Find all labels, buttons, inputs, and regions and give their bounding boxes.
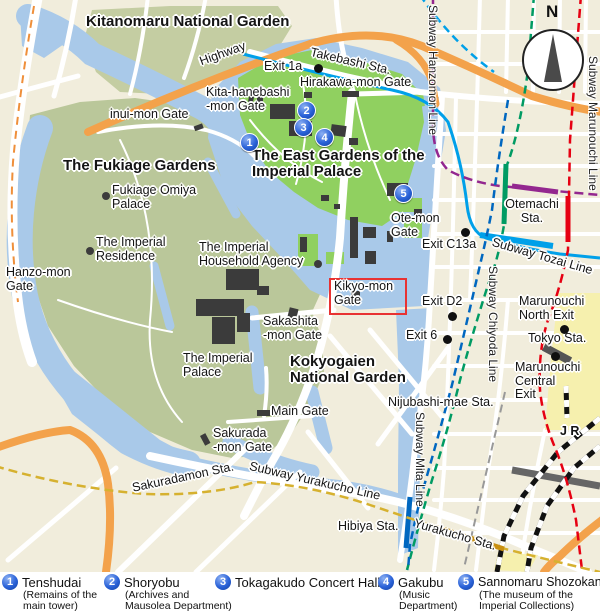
exit-d2-dot-icon [448, 312, 457, 321]
marker-5-sannomaru-shozokan: 5 [394, 184, 413, 203]
legend-item-shoryobu: 2 Shoryobu (Archives and Mausolea Depart… [104, 574, 232, 612]
map-legend: 1 Tenshudai (Remains of the main tower) … [0, 572, 600, 612]
label-imperial-residence: The Imperial Residence [96, 236, 165, 263]
exit-1a-dot-icon [314, 64, 323, 73]
label-subway-marunouchi-line: Subway Marunouchi Line [586, 56, 600, 191]
label-hirakawa-mon-gate: Hirakawa-mon Gate [300, 76, 411, 90]
label-subway-mita-line: Subway Mita Line [413, 412, 427, 507]
label-marunouchi-central-exit: Marunouchi Central Exit [515, 361, 580, 402]
label-sakashita-mon-gate: Sakashita -mon Gate [263, 315, 322, 342]
legend-item-tokagakudo: 3 Tokagakudo Concert Hall [215, 574, 380, 590]
imperial-palace-map: Kitanomaru National Garden The Fukiage G… [0, 0, 600, 612]
legend-marker-5-icon: 5 [458, 574, 474, 590]
imperial-residence-dot-icon [86, 247, 94, 255]
label-exit-d2: Exit D2 [422, 295, 462, 309]
label-subway-hanzomon-line: Subway Hanzomon Line [426, 5, 440, 135]
household-agency-dot-icon [314, 260, 322, 268]
fukiage-omiya-dot-icon [102, 192, 110, 200]
label-exit-1a: Exit 1a [264, 60, 302, 74]
label-jr: J R [560, 425, 579, 439]
label-main-gate: Main Gate [271, 405, 329, 419]
legend-marker-1-icon: 1 [2, 574, 18, 590]
marker-3-tokagakudo: 3 [294, 118, 313, 137]
marker-1-tenshudai: 1 [240, 133, 259, 152]
label-imperial-palace: The Imperial Palace [183, 352, 252, 379]
marker-4-gakubu: 4 [315, 128, 334, 147]
label-exit-c13a: Exit C13a [422, 238, 476, 252]
exit-c13a-dot-icon [461, 228, 470, 237]
label-kikyo-mon-gate: Kikyo-mon Gate [334, 280, 393, 307]
label-kitanomaru-garden: Kitanomaru National Garden [86, 14, 289, 30]
label-exit-6: Exit 6 [406, 329, 437, 343]
compass-north-label: N [546, 2, 558, 22]
label-tokyo-station: Tokyo Sta. [528, 332, 586, 346]
label-nijubashi-mae-station: Nijubashi-mae Sta. [388, 396, 494, 410]
label-subway-chiyoda-line: Subway Chiyoda Line [486, 266, 500, 382]
label-kokyogaien-garden: Kokyogaien National Garden [290, 354, 406, 386]
legend-marker-2-icon: 2 [104, 574, 120, 590]
marunouchi-north-exit-dot-icon [560, 325, 569, 334]
legend-marker-4-icon: 4 [378, 574, 394, 590]
label-sakurada-mon-gate: Sakurada -mon Gate [213, 427, 272, 454]
marker-2-shoryobu: 2 [297, 101, 316, 120]
label-hanzo-mon-gate: Hanzo-mon Gate [6, 266, 71, 293]
exit-6-dot-icon [443, 335, 452, 344]
legend-item-gakubu: 4 Gakubu (Music Department) [378, 574, 457, 612]
label-ote-mon-gate: Ote-mon Gate [391, 212, 440, 239]
label-hibiya-station: Hibiya Sta. [338, 520, 398, 534]
legend-item-tenshudai: 1 Tenshudai (Remains of the main tower) [2, 574, 97, 612]
label-otemachi-station: Otemachi Sta. [500, 198, 564, 225]
compass-icon [523, 30, 583, 90]
label-fukiage-omiya-palace: Fukiage Omiya Palace [112, 184, 196, 211]
legend-marker-3-icon: 3 [215, 574, 231, 590]
label-marunouchi-north-exit: Marunouchi North Exit [519, 295, 584, 322]
label-fukiage-gardens: The Fukiage Gardens [63, 158, 216, 174]
label-inui-mon-gate: inui-mon Gate [110, 108, 189, 122]
label-east-gardens: The East Gardens of the Imperial Palace [252, 148, 425, 180]
label-imperial-household-agency: The Imperial Household Agency [199, 241, 303, 268]
legend-item-sannomaru-shozokan: 5 Sannomaru Shozokan (The museum of the … [458, 574, 600, 612]
label-kita-hanebashi-mon-gate: Kita-hanebashi -mon Gate [206, 86, 289, 113]
map-canvas: Kitanomaru National Garden The Fukiage G… [0, 0, 600, 572]
